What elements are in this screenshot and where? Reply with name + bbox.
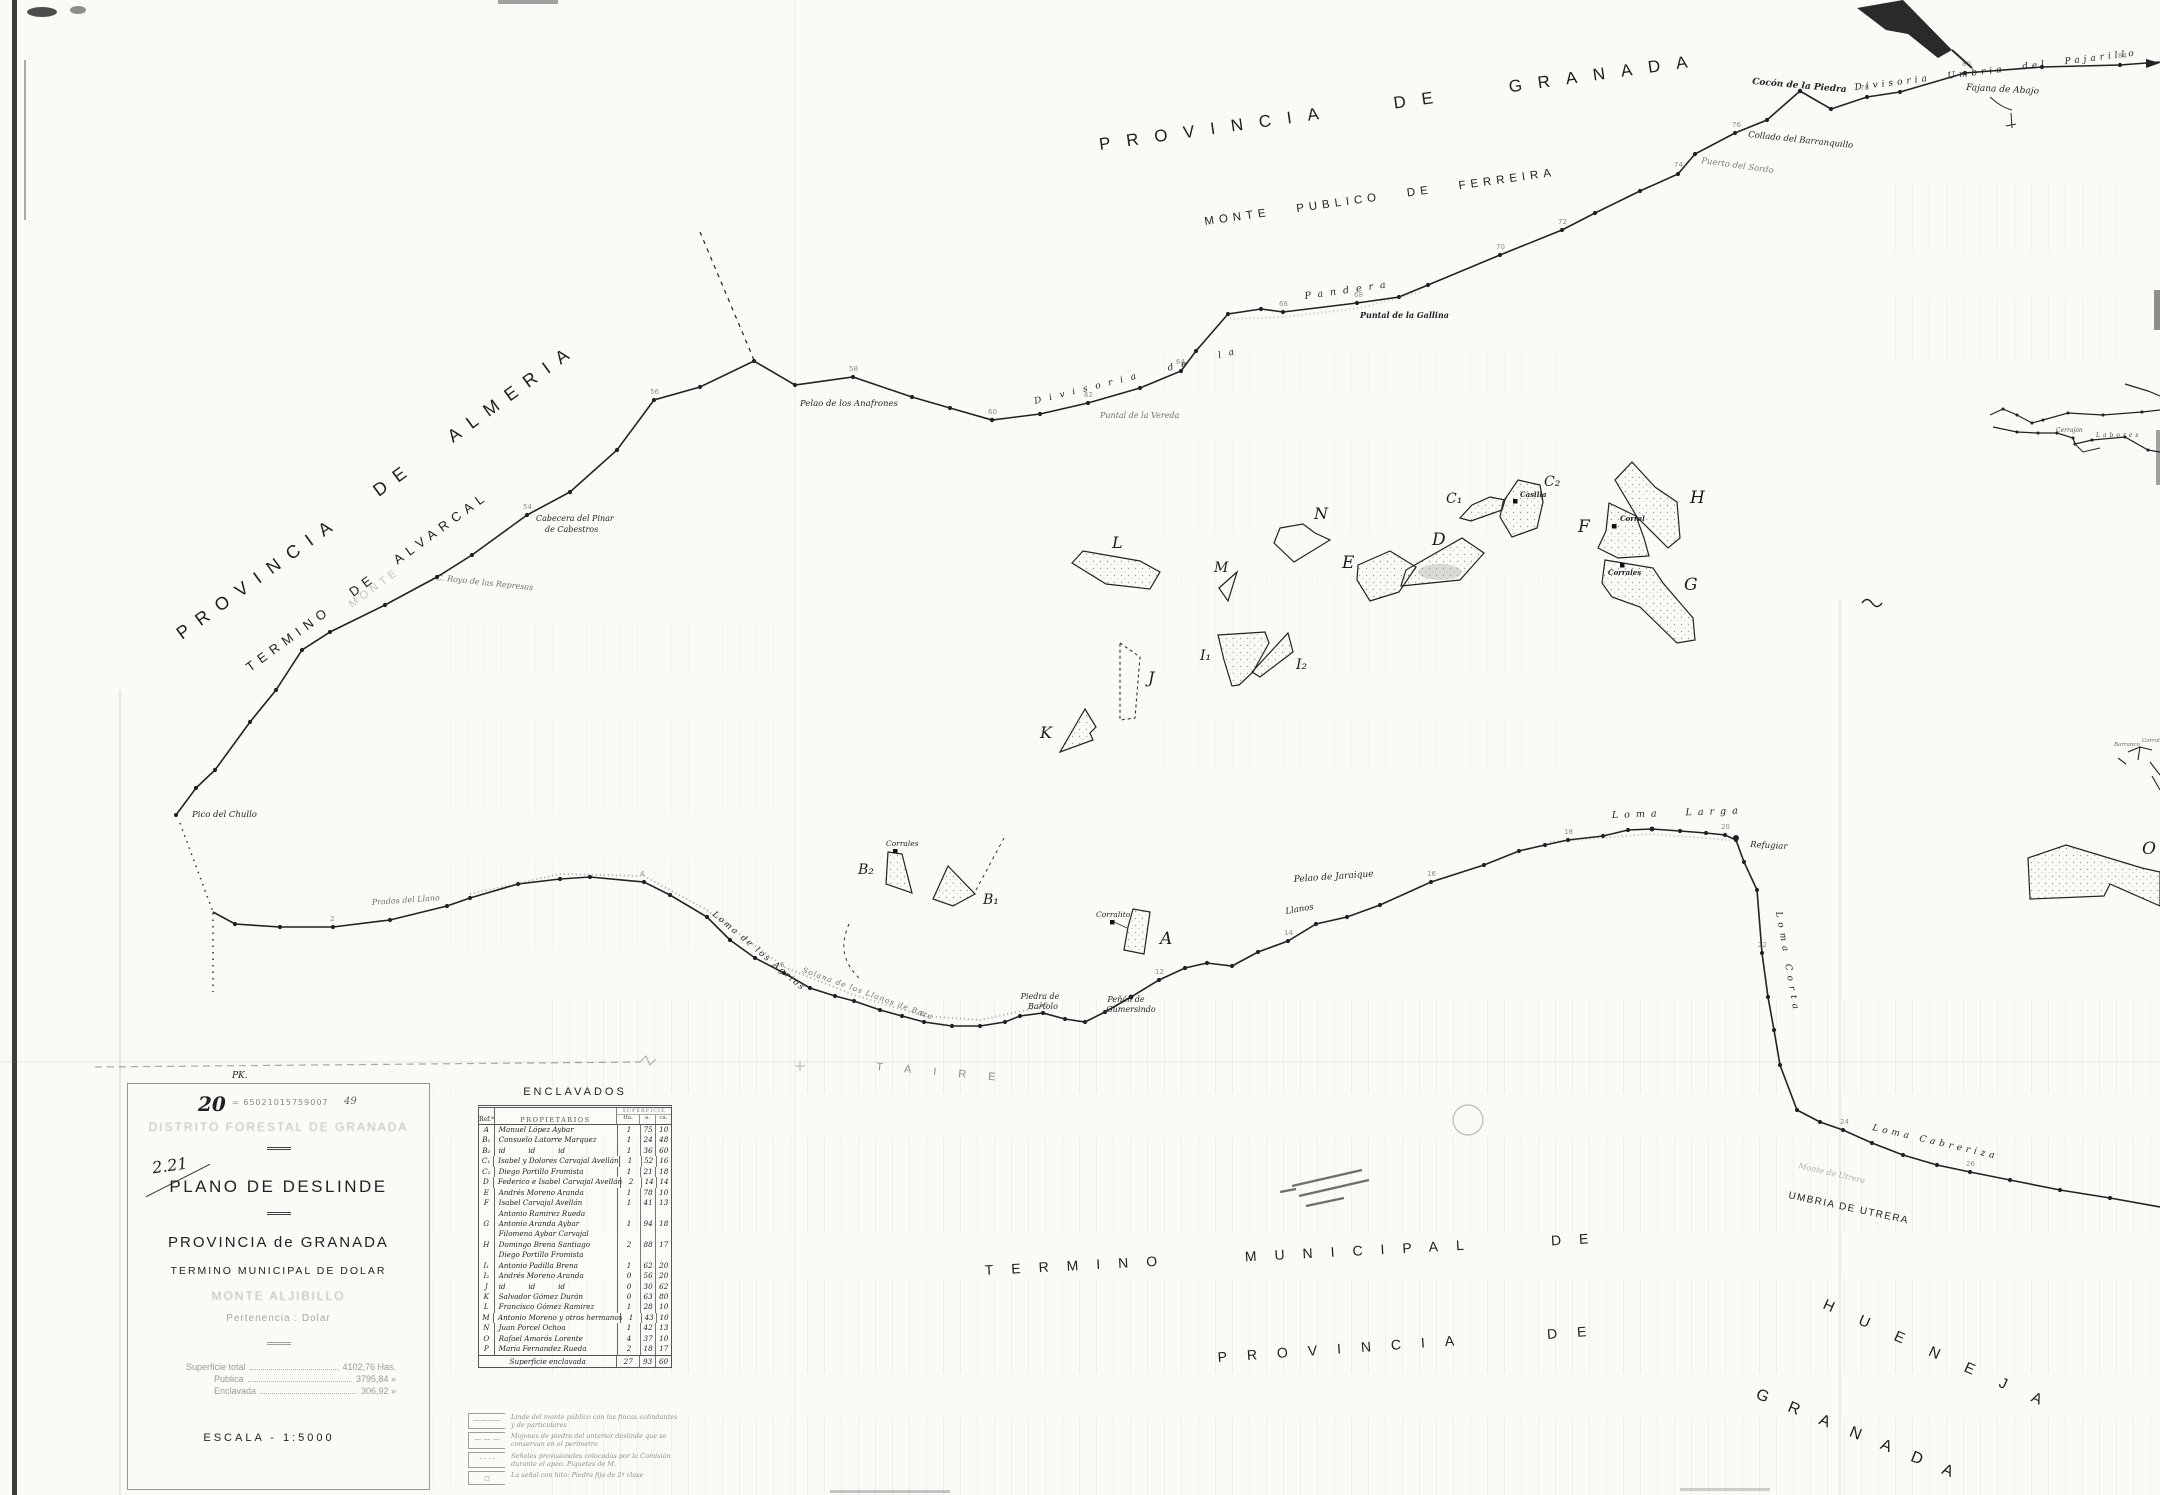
row-ha: 2	[618, 1344, 640, 1354]
row-ref: B₂	[479, 1146, 495, 1156]
row-owner: Consuelo Latorre Marquez	[499, 1135, 618, 1145]
footer-label: Superficie enclavada	[479, 1356, 617, 1368]
dotted-line	[180, 823, 213, 912]
enclave-label-h: H	[1689, 488, 1706, 508]
footer-ca: 60	[656, 1356, 671, 1368]
label-pandera: Pandera	[1303, 279, 1393, 302]
row-a: 24	[641, 1135, 657, 1145]
vertex-number: 26	[1966, 1160, 1975, 1168]
row-owner: Diego Portillo Fromista	[499, 1167, 618, 1177]
row-ref: F	[479, 1198, 495, 1219]
enclave-o-polygon	[2028, 845, 2160, 906]
label-piedra-bartolo: Piedra de	[1020, 992, 1060, 1001]
vertex-number: 24	[1840, 1118, 1849, 1126]
vertex-number: 60	[988, 408, 997, 416]
vertex-number: 4	[640, 870, 645, 878]
handwritten-annotation: 2.21	[151, 1154, 189, 1178]
row-a: 41	[641, 1198, 657, 1219]
row-ref: I₂	[479, 1271, 495, 1281]
row-ha: 2	[621, 1177, 642, 1187]
table-row: M Antonio Moreno y otros hermanos 1 43 1…	[479, 1313, 671, 1323]
row-owner: Maria Fernandez Rueda	[499, 1344, 618, 1354]
enclave-label-i1: I₁	[1199, 648, 1211, 664]
row-a: 52	[642, 1156, 657, 1166]
ink-wedge-mark	[1857, 0, 1952, 58]
vertex-number: 54	[523, 503, 532, 511]
row-a: 30	[641, 1282, 657, 1292]
row-a: 18	[641, 1344, 657, 1354]
row-ha: 1	[618, 1219, 640, 1240]
municipality-line: TERMINO MUNICIPAL DE DOLAR	[128, 1265, 429, 1277]
table-footer: Superficie enclavada 27 93 60	[479, 1355, 671, 1368]
vertex-number: 16	[1427, 870, 1436, 878]
legend-text: Mojones de piedra del anterior deslinde …	[511, 1432, 804, 1440]
row-owner: Antonio Aranda Aybar	[499, 1219, 618, 1229]
surface-publica-value: 3795,84 »	[356, 1374, 396, 1384]
enclave-label-o: O	[2142, 839, 2156, 859]
header-surface-title: SUPERFICIE	[617, 1108, 671, 1115]
label-penon-gumersindo-2: Gumersindo	[1106, 1005, 1156, 1014]
divider	[267, 1147, 291, 1150]
enclave-b2-polygon	[886, 852, 912, 893]
row-ca: 13	[656, 1198, 671, 1219]
scan-noise-band	[1150, 350, 1570, 770]
legend-text-2: durante el apeo. Piquetes de M.	[511, 1460, 804, 1468]
row-ha: 1	[618, 1302, 640, 1312]
row-a: 36	[641, 1146, 657, 1156]
row-ca: 62	[656, 1282, 671, 1292]
label-corralito-a: Corralito	[1096, 910, 1131, 919]
row-ref: K	[479, 1292, 495, 1302]
header-ref: Ref.ª	[479, 1108, 495, 1124]
row-owner: Juan Porcel Ochoa	[499, 1323, 618, 1333]
label-pico-chullo: Pico del Chullo	[191, 810, 257, 820]
row-ca: 18	[656, 1219, 671, 1240]
scan-edge-left	[12, 0, 17, 1495]
scale-label: ESCALA - 1:5000	[189, 1432, 349, 1444]
vertex-number: 78	[1860, 84, 1869, 92]
row-ha: 1	[618, 1261, 640, 1271]
row-owner: Isabel y Dolores Carvajal Avellán	[498, 1156, 618, 1166]
table-row: P Maria Fernandez Rueda 2 18 17	[479, 1344, 671, 1354]
enclave-label-l: L	[1111, 533, 1123, 552]
boundary-texture	[1550, 834, 1730, 842]
label-loma-larga: Loma Larga	[1611, 805, 1744, 821]
row-ha: 1	[621, 1313, 642, 1323]
boundary-vertex	[174, 813, 178, 817]
header-owners: PROPIETARIOS	[495, 1108, 617, 1124]
label-pk: PK.	[231, 1071, 248, 1081]
row-owner: Salvador Gómez Durán	[499, 1292, 618, 1302]
row-ca: 60	[656, 1146, 671, 1156]
row-ref: M	[479, 1313, 494, 1323]
row-a: 56	[641, 1271, 657, 1281]
enclave-label-b1: B₁	[982, 892, 999, 908]
label-collado-barranquillo: Collado del Barranquillo	[1748, 130, 1854, 151]
sheet-number: 20	[198, 1092, 226, 1116]
table-row: B₁ Consuelo Latorre Marquez 1 24 48	[479, 1135, 671, 1145]
row-a: 94	[641, 1219, 657, 1240]
header-surface: SUPERFICIE Ha. a. ca.	[617, 1108, 671, 1124]
vertex-number: 12	[1155, 968, 1164, 976]
row-ca: 17	[656, 1240, 671, 1261]
row-ha: 4	[618, 1334, 640, 1344]
scan-edge-mark	[498, 0, 558, 4]
enclave-label-c1: C₁	[1446, 491, 1462, 507]
label-labores: Labores	[2095, 432, 2142, 439]
legend-text: Linde del monte público con las fincas c…	[511, 1413, 804, 1421]
row-owner-2: Diego Portillo Fromista	[499, 1250, 618, 1260]
province-line: PROVINCIA de GRANADA	[128, 1234, 429, 1251]
scan-edge-mark	[2156, 430, 2160, 485]
table-row: I₁ Antonio Padilla Brena 1 62 20	[479, 1261, 671, 1271]
surface-enclavada-value: 306,92 »	[361, 1386, 396, 1396]
label-pelao-jaraique: Pelao de Jaraique	[1293, 869, 1374, 885]
enclavados-table: ENCLAVADOS Ref.ª PROPIETARIOS SUPERFICIE…	[478, 1086, 672, 1368]
row-ref: L	[479, 1302, 495, 1312]
row-a: 43	[642, 1313, 657, 1323]
row-owner: id id id	[499, 1282, 618, 1292]
header-ha: Ha.	[617, 1115, 640, 1124]
label-corrales-g: Corrales	[1608, 568, 1641, 577]
row-ha: 1	[618, 1198, 640, 1219]
row-ca: 20	[656, 1271, 671, 1281]
row-ha: 1	[618, 1167, 640, 1177]
table-row: H Domingo Brena SantiagoDiego Portillo F…	[479, 1240, 671, 1261]
label-puntal-gallina: Puntal de la Gallina	[1359, 310, 1449, 320]
legend-symbol: · · · ·	[468, 1452, 505, 1468]
bird-mark	[1862, 600, 1882, 607]
boundary-vertex	[1650, 827, 1655, 832]
legend-text-2: y de particulares	[511, 1421, 804, 1429]
row-ref: O	[479, 1334, 495, 1344]
row-ha: 1	[620, 1156, 642, 1166]
row-a: 88	[641, 1240, 657, 1261]
vertex-number: 14	[1284, 929, 1293, 937]
enclave-label-d: D	[1431, 530, 1446, 550]
building-square-a	[1110, 920, 1115, 925]
enclave-b1-polygon	[933, 866, 975, 906]
boundary-vertex	[990, 418, 994, 422]
row-ha: 1	[618, 1146, 640, 1156]
label-loma-corta: Loma Corta	[1773, 910, 1801, 1015]
row-owner: Manuel López Aybar	[499, 1125, 618, 1135]
table-row: D Federico e Isabel Carvajal Avellán 2 1…	[479, 1177, 671, 1187]
row-ref: B₁	[479, 1135, 495, 1145]
label-corrales-b2: Corrales	[886, 839, 919, 848]
vertex-number: 64	[1176, 358, 1185, 366]
label-corral-f: Corral	[1620, 514, 1645, 523]
enclave-label-k: K	[1039, 723, 1053, 742]
row-owner-2: Antonio Ramirez Rueda	[499, 1209, 618, 1219]
row-ca: 80	[656, 1292, 671, 1302]
label-llanos: Llanos	[1284, 902, 1315, 917]
row-ref: A	[479, 1125, 495, 1135]
vertex-number: 74	[1674, 161, 1683, 169]
dashed-line	[700, 232, 754, 360]
surface-summary: Superficie total4102,76 Has. Publica3795…	[186, 1362, 396, 1398]
row-ref: H	[479, 1240, 495, 1261]
row-ha: 1	[618, 1188, 640, 1198]
row-ca: 17	[656, 1344, 671, 1354]
row-a: 37	[641, 1334, 657, 1344]
plan-title: PLANO DE DESLINDE	[128, 1177, 429, 1197]
vertex-number: 84	[2118, 52, 2127, 60]
row-ref: J	[479, 1282, 495, 1292]
row-ca: 10	[656, 1188, 671, 1198]
title-block: 20 = 65021015759007 49 DISTRITO FORESTAL…	[127, 1083, 430, 1490]
row-ha: 0	[618, 1282, 640, 1292]
vertex-number: 22	[1758, 941, 1767, 949]
table-row: E Andrés Moreno Aranda 1 78 10	[479, 1188, 671, 1198]
enclave-j-polygon	[1120, 643, 1140, 720]
row-ca: 10	[656, 1302, 671, 1312]
row-ha: 0	[618, 1292, 640, 1302]
row-a: 42	[641, 1323, 657, 1333]
row-ref: E	[479, 1188, 495, 1198]
vertex-number: 10	[1039, 1001, 1048, 1009]
enclave-label-a: A	[1158, 929, 1172, 949]
enclave-label-b2: B₂	[857, 862, 874, 878]
scan-edge-mark	[1680, 1488, 1770, 1491]
scan-edge-mark	[2154, 290, 2160, 330]
legend-item: ◻ La señal con hito: Piedra fija de 2ª c…	[468, 1471, 804, 1486]
vertex-number: 20	[1721, 823, 1730, 831]
vertex-number: 56	[650, 388, 659, 396]
vertex-number: 66	[1279, 300, 1288, 308]
row-a: 14	[642, 1177, 657, 1187]
row-ca: 48	[656, 1135, 671, 1145]
row-ha: 1	[618, 1135, 640, 1145]
label-puerto-sordo: Puerto del Sordo	[1700, 156, 1775, 176]
row-owner: Domingo Brena Santiago	[499, 1240, 618, 1250]
enclave-label-f: F	[1577, 517, 1591, 537]
header-ca: ca.	[656, 1115, 671, 1124]
row-owner: id id id	[499, 1146, 618, 1156]
row-ca: 14	[657, 1177, 671, 1187]
row-ref: I₁	[479, 1261, 495, 1271]
monte-line: MONTE ALJIBILLO	[128, 1289, 429, 1303]
surface-total-value: 4102,76 Has.	[342, 1362, 396, 1372]
row-ca: 18	[656, 1167, 671, 1177]
edge-polyline	[2075, 444, 2100, 452]
footer-ha: 27	[617, 1356, 640, 1368]
vertex-number: 18	[1564, 828, 1573, 836]
edge-polyline	[1990, 409, 2160, 423]
table-row: O Rafael Amorós Lorente 4 37 10	[479, 1334, 671, 1344]
row-owner: Federico e Isabel Carvajal Avellán	[498, 1177, 620, 1187]
table-row: J id id id 0 30 62	[479, 1282, 671, 1292]
label-corrales-small: Corrales	[2142, 738, 2160, 744]
row-ha: 1	[618, 1323, 640, 1333]
sheet-serial: = 65021015759007	[232, 1098, 329, 1107]
vertex-number: 72	[1558, 218, 1567, 226]
pertenencia-line: Pertenencia : Dolar	[128, 1313, 429, 1324]
label-penon-gumersindo: Peñón de	[1106, 995, 1145, 1004]
row-a: 63	[641, 1292, 657, 1302]
legend-symbol: ◻	[468, 1471, 505, 1486]
label-cerrajon: Cerrajón	[2056, 427, 2083, 434]
row-owner: Antonio Moreno y otros hermanos	[498, 1313, 620, 1323]
scan-edge-mark	[830, 1490, 950, 1493]
enclave-label-m: M	[1213, 560, 1229, 576]
table-row: G Antonio Aranda AybarFilomena Aybar Car…	[479, 1219, 671, 1240]
row-ref: P	[479, 1344, 495, 1354]
enclavados-title: ENCLAVADOS	[478, 1086, 672, 1098]
table-row: B₂ id id id 1 36 60	[479, 1146, 671, 1156]
legend-symbol: — — —	[468, 1432, 505, 1448]
row-owner-2: Filomena Aybar Carvajal	[499, 1229, 618, 1239]
label-casilla-c2: Casilla	[1520, 490, 1547, 499]
edge-marks	[2118, 747, 2160, 790]
label-provincia-granada-top: PROVINCIA DE GRANADA	[1098, 50, 1704, 154]
table-body: A Manuel López Aybar 1 75 10 B₁ Consuelo…	[479, 1125, 671, 1355]
row-ref: C₂	[479, 1167, 495, 1177]
scan-noise-band	[432, 1085, 466, 1485]
row-a: 62	[641, 1261, 657, 1271]
building-square-f	[1612, 524, 1617, 529]
boundary-vertex	[1733, 835, 1739, 841]
vertex-number: 58	[849, 365, 858, 373]
row-owner: Andrés Moreno Aranda	[499, 1188, 618, 1198]
vertex-number: 62	[1084, 391, 1093, 399]
boundary-arrow	[2146, 59, 2160, 68]
surface-enclavada-label: Enclavada	[214, 1386, 256, 1396]
enclave-label-e: E	[1341, 553, 1355, 573]
legend-text: Señales provisionales colocadas por la C…	[511, 1452, 804, 1460]
row-ref: D	[479, 1177, 494, 1187]
leader-line	[1990, 97, 2016, 128]
row-a: 78	[641, 1188, 657, 1198]
label-monte-publico-ferreira: MONTE PUBLICO DE FERREIRA	[1204, 167, 1557, 228]
table-row: N Juan Porcel Ochoa 1 42 13	[479, 1323, 671, 1333]
row-owner: Francisco Gómez Ramirez	[499, 1302, 618, 1312]
label-cabecera-pinar-2: de Cabestros	[545, 525, 598, 534]
row-a: 28	[641, 1302, 657, 1312]
scan-edge-mark	[24, 60, 26, 220]
legend-symbol: ————	[468, 1413, 505, 1429]
row-ha: 1	[618, 1125, 640, 1135]
surface-total-label: Superficie total	[186, 1362, 246, 1372]
divider	[267, 1212, 291, 1215]
row-ref: N	[479, 1323, 495, 1333]
table-row: I₂ Andrés Moreno Aranda 0 56 20	[479, 1271, 671, 1281]
legend-item: · · · · Señales provisionales colocadas …	[468, 1452, 804, 1468]
label-provincia-almeria: PROVINCIA DE ALMERIA	[173, 338, 582, 643]
table-header: Ref.ª PROPIETARIOS SUPERFICIE Ha. a. ca.	[479, 1108, 671, 1125]
surface-publica-label: Publica	[214, 1374, 244, 1384]
sheet-number-2: 49	[344, 1096, 357, 1107]
table-row: K Salvador Gómez Durán 0 63 80	[479, 1292, 671, 1302]
label-royo-represas: C. Royo de las Represas	[436, 573, 534, 592]
row-ca: 10	[656, 1334, 671, 1344]
table-row: C₂ Diego Portillo Fromista 1 21 18	[479, 1167, 671, 1177]
row-ha: 2	[618, 1240, 640, 1261]
building-square-b2	[893, 849, 898, 854]
enclave-l-polygon	[1072, 551, 1160, 589]
scan-blot	[27, 7, 57, 17]
label-refugiar: Refugiar	[1749, 840, 1789, 852]
legend-item: ———— Linde del monte público con las fin…	[468, 1413, 804, 1429]
vertex-number: 6	[780, 961, 785, 969]
map-sheet: A B₁ B₂ C₁ C₂ D E F G H I₁ I₂ J K L M N …	[0, 0, 2160, 1495]
enclave-label-n: N	[1313, 504, 1329, 523]
vertex-number: 70	[1496, 243, 1505, 251]
vertex-number: 68	[1354, 291, 1363, 299]
scan-noise-band	[420, 620, 800, 950]
label-fajana-abajo: Fajana de Abajo	[1965, 83, 2040, 97]
building-square-c2	[1513, 499, 1518, 504]
row-ref: G	[479, 1219, 495, 1240]
row-a: 21	[641, 1167, 657, 1177]
dashed-line	[844, 924, 861, 980]
table-row: C₁ Isabel y Dolores Carvajal Avellán 1 5…	[479, 1156, 671, 1166]
enclave-k-polygon	[1060, 709, 1096, 752]
enclave-d-shading	[1418, 564, 1462, 580]
legend-item: — — — Mojones de piedra del anterior des…	[468, 1432, 804, 1448]
building-leader	[1114, 922, 1127, 928]
divider	[267, 1342, 291, 1345]
table-row: L Francisco Gómez Ramirez 1 28 10	[479, 1302, 671, 1312]
enclave-label-c2: C₂	[1544, 474, 1561, 490]
row-owner: Antonio Padilla Brena	[499, 1261, 618, 1271]
row-owner: Isabel Carvajal Avellán	[499, 1198, 618, 1208]
vertex-number: 80	[1962, 60, 1971, 68]
vertex-number: 2	[330, 915, 334, 923]
enclavados-grid: Ref.ª PROPIETARIOS SUPERFICIE Ha. a. ca.…	[478, 1105, 672, 1368]
edge-polyline	[2125, 384, 2160, 396]
label-cabecera-pinar: Cabecera del Pinar	[536, 514, 615, 523]
dashed-line	[976, 838, 1004, 890]
table-row: A Manuel López Aybar 1 75 10	[479, 1125, 671, 1135]
footer-a: 93	[640, 1356, 656, 1368]
label-puntal-vereda: Puntal de la Vereda	[1099, 411, 1180, 420]
enclave-label-g: G	[1684, 575, 1698, 595]
vertex-number: 76	[1732, 121, 1741, 129]
scan-noise-band	[1880, 180, 2120, 360]
label-pelao-anafrones: Pelao de los Anafrones	[799, 399, 899, 409]
table-row: F Isabel Carvajal AvellánAntonio Ramirez…	[479, 1198, 671, 1219]
building-square-g	[1620, 563, 1625, 568]
row-ca: 16	[657, 1156, 671, 1166]
row-ca: 20	[656, 1261, 671, 1271]
scan-blot	[70, 6, 86, 14]
vertex-number: 8	[920, 1010, 924, 1018]
row-ha: 0	[618, 1271, 640, 1281]
row-ca: 13	[656, 1323, 671, 1333]
map-legend: ———— Linde del monte público con las fin…	[468, 1413, 804, 1488]
legend-text: La señal con hito: Piedra fija de 2ª cla…	[511, 1471, 804, 1479]
enclave-label-j: J	[1145, 668, 1156, 687]
row-ref: C₁	[479, 1156, 494, 1166]
header-a: a.	[640, 1115, 656, 1124]
row-owner: Rafael Amorós Lorente	[499, 1334, 618, 1344]
row-ca: 10	[657, 1313, 671, 1323]
district-stamp: DISTRITO FORESTAL DE GRANADA	[128, 1120, 429, 1134]
row-a: 75	[641, 1125, 657, 1135]
label-barranco-small: Barranco	[2113, 742, 2140, 748]
legend-text-2: conservan en el perímetro	[511, 1440, 804, 1448]
row-owner: Andrés Moreno Aranda	[499, 1271, 618, 1281]
enclave-label-i2: I₂	[1295, 657, 1308, 673]
row-ca: 10	[656, 1125, 671, 1135]
